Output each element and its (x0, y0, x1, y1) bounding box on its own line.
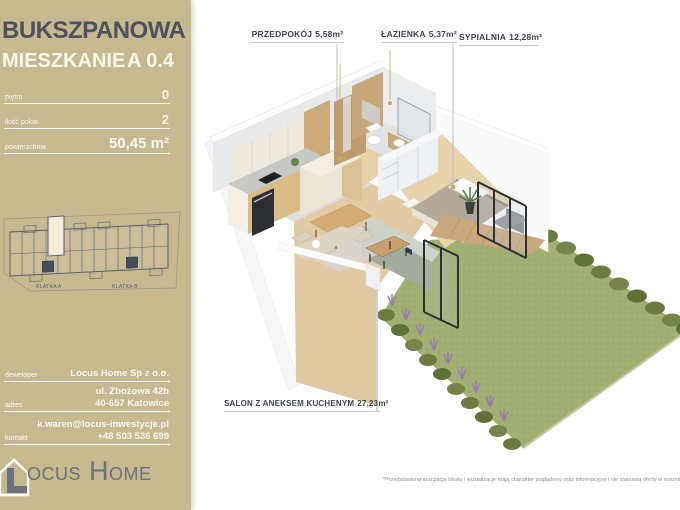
unit-number: A 0.4 (127, 50, 174, 73)
room-label-sypialnia: SYPIALNIA12,28m² (459, 32, 539, 46)
pendant-lamp-bath (388, 101, 392, 105)
room-label-przedpokoj: PRZEDPOKÓJ5,58m² (251, 29, 344, 43)
room-label-salon: SALON Z ANEKSEM KUCHENYM27,23m² (224, 399, 380, 412)
spec-label: powierzchnia (5, 144, 46, 151)
sink (394, 140, 405, 147)
contact-label: adres (5, 402, 23, 409)
locus-home-logo: OCUS HOME (0, 450, 180, 502)
spec-row-floor: piętro 0 (4, 86, 170, 104)
balcony (150, 269, 162, 276)
logo-h: H (89, 456, 109, 486)
highlighted-unit-a04 (48, 216, 64, 256)
room-area: 27,23m² (357, 399, 388, 408)
contact-email: k.waren@locus-inwestycje.pl (37, 419, 169, 431)
developer-name: Locus Home Sp z o.o. (70, 368, 169, 380)
pendant-lamp-island (338, 157, 343, 162)
logo-ome: OME (109, 464, 152, 484)
room-area: 5,37m² (429, 29, 457, 39)
klatka-b-label: KLATKA B (100, 284, 150, 290)
project-title: BUKSZPANOWA (2, 17, 188, 45)
disclaimer-text: *Przedstawiona aranżacja lokalu i wizual… (383, 477, 680, 483)
klatka-a-label: KLATKA A (24, 284, 74, 290)
room-name: ŁAZIENKA (381, 29, 426, 39)
spec-label: piętro (5, 94, 23, 101)
contact-label: deweloper (5, 372, 37, 379)
pendant-lamp-bedroom (451, 185, 456, 190)
spec-row-rooms: ilość pokoi 2 (4, 111, 170, 129)
balcony (30, 275, 42, 282)
spec-label: ilość pokoi (5, 119, 38, 126)
contact-phone: +48 503 536 699 (37, 431, 169, 443)
balcony (90, 272, 102, 279)
room-name: SYPIALNIA (459, 32, 506, 42)
salon-glass-doors (424, 240, 458, 328)
staircase-a (42, 261, 54, 273)
address-street: ul. Zbożowa 42b (95, 386, 169, 398)
spec-row-area: powierzchnia 50,45 m² (4, 133, 170, 154)
room-label-lazienka: ŁAZIENKA5,37m² (381, 29, 457, 43)
toilet (368, 136, 381, 145)
room-name: SALON Z ANEKSEM KUCHENYM (224, 399, 354, 408)
wardrobe-mirror (343, 95, 351, 153)
spec-value: 2 (162, 112, 169, 127)
spec-value: 50,45 m² (109, 135, 169, 152)
room-name: PRZEDPOKÓJ (252, 29, 313, 39)
unit-label: MIESZKANIE (2, 50, 125, 73)
contact-row-kontakt: kontakt k.waren@locus-inwestycje.pl +48 … (4, 413, 170, 445)
kitchen-plant (291, 158, 299, 166)
room-area: 12,28m² (509, 32, 542, 42)
contact-row-address: adres ul. Zbożowa 42b 40-657 Katowice (4, 384, 170, 412)
contact-row-developer: deweloper Locus Home Sp z o.o. (4, 364, 170, 382)
address-city: 40-657 Katowice (95, 398, 169, 410)
logo-wordmark: OCUS HOME (27, 456, 152, 487)
room-area: 5,58m² (315, 29, 343, 39)
sofa-pillow (312, 240, 320, 248)
unit-line: MIESZKANIE A 0.4 (2, 50, 174, 73)
contact-label: kontakt (5, 435, 28, 442)
spec-value: 0 (162, 87, 169, 102)
house-logo-icon (0, 452, 30, 498)
info-sidebar: BUKSZPANOWA MIESZKANIE A 0.4 piętro 0 il… (0, 0, 191, 510)
logo-ocus: OCUS (27, 464, 81, 484)
staircase-b (126, 257, 138, 269)
